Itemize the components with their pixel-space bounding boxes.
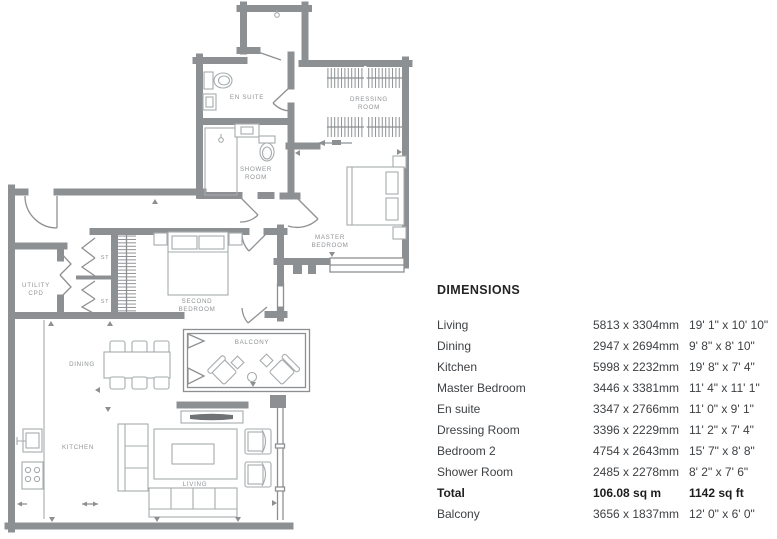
dimension-imperial: 12' 0" x 6' 0": [689, 504, 772, 525]
dimension-row: Balcony3656 x 1837mm12' 0" x 6' 0": [437, 504, 772, 525]
side-table: [260, 354, 273, 367]
toilet: [259, 136, 275, 143]
side-table: [231, 356, 244, 369]
dimension-row: Bedroom 24754 x 2643mm15' 7" x 8' 8": [437, 441, 772, 462]
shower-room-fixtures: [205, 124, 275, 195]
sofa: [118, 424, 148, 491]
master-bedroom-door: [297, 198, 318, 219]
ensuite-door: [273, 86, 291, 103]
svg-text:BEDROOM: BEDROOM: [179, 306, 216, 313]
round-table: [248, 373, 257, 382]
dimension-name: Master Bedroom: [437, 378, 593, 399]
dimension-metric: 3396 x 2229mm: [593, 420, 689, 441]
dining-chair: [154, 341, 169, 353]
svg-text:BEDROOM: BEDROOM: [312, 242, 349, 249]
shower-head-icon: [219, 138, 224, 143]
dimension-imperial: 11' 4" x 11' 1": [689, 378, 772, 399]
balcony-door-marker: [188, 334, 204, 348]
label-dining: DINING: [69, 361, 95, 368]
dimension-row: En suite3347 x 2766mm11' 0" x 9' 1": [437, 399, 772, 420]
bedside-table: [393, 227, 406, 239]
dimension-name: Balcony: [437, 504, 593, 525]
balcony-furniture: [207, 354, 300, 387]
label-shower-room: SHOWER: [240, 166, 272, 173]
dimension-ticks: [17, 149, 402, 522]
balcony-door: [248, 307, 267, 323]
svg-text:CPD: CPD: [28, 290, 43, 297]
dining-chair: [110, 341, 125, 353]
svg-text:ROOM: ROOM: [245, 174, 267, 181]
dimension-imperial: 11' 2" x 7' 4": [689, 420, 772, 441]
master-bedroom-furniture: [347, 156, 406, 239]
armchair: [245, 429, 271, 454]
dimension-name: Kitchen: [437, 357, 593, 378]
dimension-row: Living5813 x 3304mm19' 1" x 10' 10": [437, 315, 772, 336]
dimension-name: Dressing Room: [437, 420, 593, 441]
shower-room-door: [240, 197, 258, 215]
dimension-name: Bedroom 2: [437, 441, 593, 462]
dimension-name: Total: [437, 483, 593, 504]
storage-bifold-door: [82, 281, 95, 299]
dimension-metric: 106.08 sq m: [593, 483, 689, 504]
dimension-imperial: 8' 2" x 7' 6": [689, 462, 772, 483]
windows: [276, 258, 405, 520]
dimension-row: Kitchen5998 x 2232mm19' 8" x 7' 4": [437, 357, 772, 378]
dimension-name: En suite: [437, 399, 593, 420]
dining-furniture: [104, 341, 170, 389]
dining-chair: [132, 341, 147, 353]
label-second-bedroom: SECOND: [182, 298, 213, 305]
label-balcony: BALCONY: [235, 339, 269, 346]
armchair: [245, 462, 271, 487]
basin: [203, 94, 216, 110]
balcony-door-marker: [188, 368, 204, 384]
label-living: LIVING: [183, 481, 208, 488]
dimension-metric: 2485 x 2278mm: [593, 462, 689, 483]
second-bedroom-wardrobe: [117, 234, 136, 314]
pillow: [172, 236, 197, 249]
label-st-lower: ST: [101, 299, 110, 305]
bedside-table: [154, 233, 167, 245]
toilet: [204, 72, 213, 89]
dimension-metric: 2947 x 2694mm: [593, 336, 689, 357]
dimension-metric: 3347 x 2766mm: [593, 399, 689, 420]
second-bedroom-furniture: [154, 232, 242, 295]
dimension-imperial: 11' 0" x 9' 1": [689, 399, 772, 420]
label-st-upper: ST: [101, 255, 110, 261]
coffee-table: [172, 444, 214, 464]
tv: [190, 414, 233, 421]
dining-chair: [110, 377, 125, 389]
dimension-imperial: 19' 1" x 10' 10": [689, 315, 772, 336]
dining-chair: [132, 377, 147, 389]
floorplan-page: EN SUITE DRESSING ROOM SHOWER ROOM MASTE…: [0, 0, 777, 539]
label-utility: UTILITY: [22, 282, 50, 289]
pillow: [199, 236, 224, 249]
dimension-metric: 5813 x 3304mm: [593, 315, 689, 336]
living-furniture: [118, 411, 271, 517]
dimension-row: Shower Room2485 x 2278mm8' 2" x 7' 6": [437, 462, 772, 483]
bedside-table: [229, 233, 242, 245]
dimensions-title: DIMENSIONS: [437, 283, 772, 297]
dimension-metric: 4754 x 2643mm: [593, 441, 689, 462]
hob: [22, 462, 43, 489]
dining-chair: [154, 377, 169, 389]
label-dressing-room: DRESSING: [350, 96, 388, 103]
svg-text:ROOM: ROOM: [358, 104, 380, 111]
second-bedroom-door: [249, 233, 267, 251]
shower-head-icon: [275, 13, 280, 18]
label-master-bedroom: MASTER: [315, 234, 345, 241]
label-kitchen: KITCHEN: [62, 444, 94, 451]
basin: [235, 124, 259, 137]
dimension-metric: 3446 x 3381mm: [593, 378, 689, 399]
dimensions-table: DIMENSIONS Living5813 x 3304mm19' 1" x 1…: [437, 283, 772, 525]
storage-bifold-door: [82, 238, 95, 258]
bedside-table: [393, 156, 406, 168]
dimension-imperial: 1142 sq ft: [689, 483, 772, 504]
dimension-imperial: 9' 8" x 8' 10": [689, 336, 772, 357]
kitchen-fixtures: [17, 320, 44, 519]
ensuite-shower-door: [258, 52, 281, 60]
dimension-name: Dining: [437, 336, 593, 357]
dimension-row: Master Bedroom3446 x 3381mm11' 4" x 11' …: [437, 378, 772, 399]
dimension-metric: 5998 x 2232mm: [593, 357, 689, 378]
dimension-name: Living: [437, 315, 593, 336]
dimension-metric: 3656 x 1837mm: [593, 504, 689, 525]
pillow: [386, 198, 398, 220]
dimension-row: Total106.08 sq m1142 sq ft: [437, 483, 772, 504]
dining-table: [104, 352, 170, 378]
label-en-suite: EN SUITE: [230, 94, 264, 101]
dimension-name: Shower Room: [437, 462, 593, 483]
dimension-imperial: 15' 7" x 8' 8": [689, 441, 772, 462]
dimensions-rows: Living5813 x 3304mm19' 1" x 10' 10"Dinin…: [437, 315, 772, 525]
dimension-row: Dressing Room3396 x 2229mm11' 2" x 7' 4": [437, 420, 772, 441]
dimension-imperial: 19' 8" x 7' 4": [689, 357, 772, 378]
dimension-row: Dining2947 x 2694mm9' 8" x 8' 10": [437, 336, 772, 357]
floor-plan: EN SUITE DRESSING ROOM SHOWER ROOM MASTE…: [0, 0, 430, 539]
pillow: [386, 172, 398, 194]
